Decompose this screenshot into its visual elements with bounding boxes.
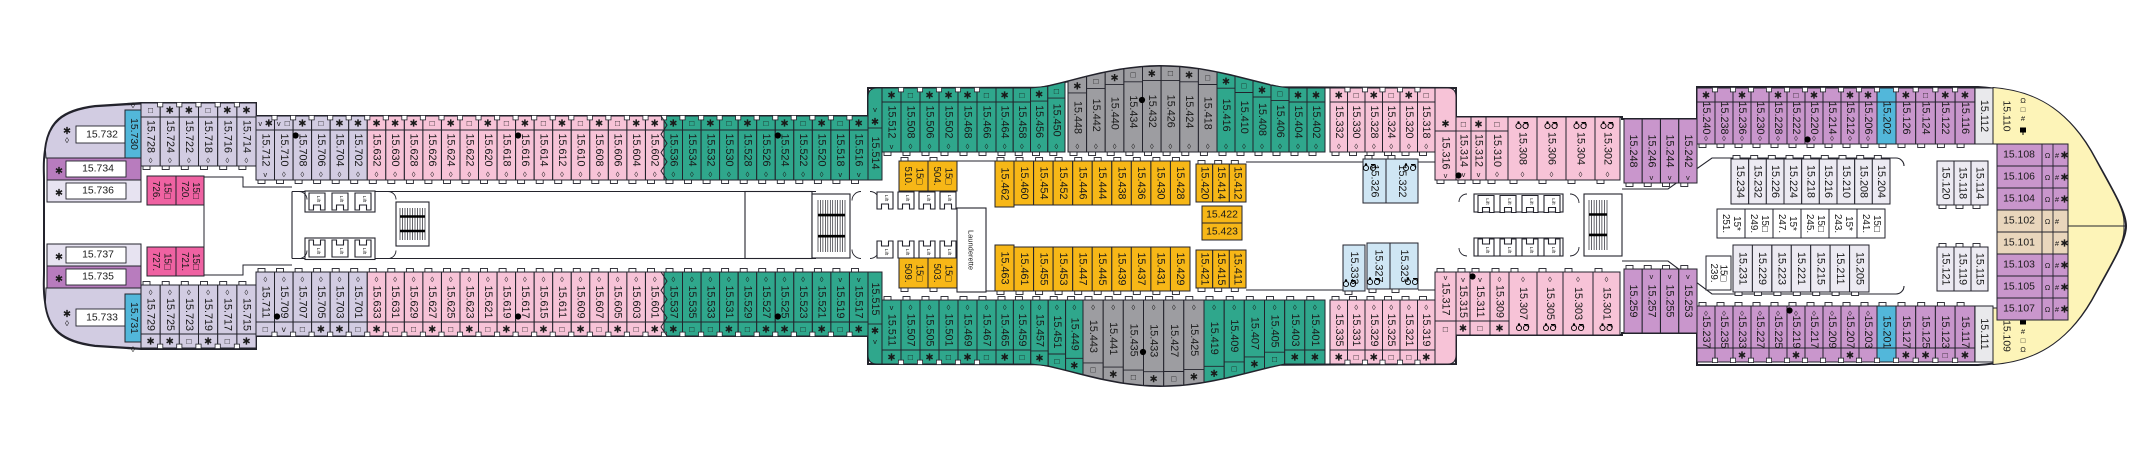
svg-text:15.529: 15.529 [742, 285, 754, 318]
svg-text:□: □ [1131, 372, 1136, 382]
svg-text:□: □ [689, 118, 694, 128]
svg-text:15.124: 15.124 [1920, 101, 1932, 134]
svg-text:15.521: 15.521 [816, 285, 828, 318]
svg-text:◊: ◊ [1794, 134, 1798, 143]
svg-text:Lift: Lift [1506, 247, 1512, 254]
svg-text:Lift: Lift [1528, 198, 1534, 205]
svg-text:15.203: 15.203 [1862, 315, 1874, 348]
svg-text:□: □ [1443, 324, 1448, 334]
svg-text:15.335: 15.335 [1333, 313, 1345, 346]
svg-text:15.210: 15.210 [1840, 165, 1852, 198]
svg-text:◊: ◊ [1372, 303, 1376, 312]
svg-text:15.452: 15.452 [1057, 166, 1069, 199]
svg-text:15.717: 15.717 [221, 298, 233, 331]
svg-text:v: v [1668, 272, 1672, 281]
svg-text:◊: ◊ [206, 288, 210, 297]
svg-text:◊: ◊ [966, 303, 970, 312]
svg-text:◊: ◊ [449, 275, 453, 284]
svg-text:◊: ◊ [1354, 303, 1358, 312]
svg-text:◊: ◊ [1740, 309, 1744, 318]
svg-text:15.223: 15.223 [1776, 252, 1788, 285]
svg-text:◊: ◊ [393, 275, 397, 284]
svg-text:□: □ [206, 105, 211, 115]
svg-text:15.306: 15.306 [1546, 132, 1558, 165]
svg-text:15.416: 15.416 [1220, 99, 1232, 132]
svg-text:◊: ◊ [709, 275, 713, 284]
svg-text:Lift: Lift [315, 248, 321, 255]
svg-text:◊: ◊ [746, 275, 750, 284]
svg-text:□: □ [1477, 323, 1482, 333]
svg-text:v: v [1686, 173, 1690, 182]
svg-text:◊: ◊ [1758, 309, 1762, 318]
svg-text:Launderette: Launderette [967, 230, 976, 270]
svg-text:Lift: Lift [1506, 198, 1512, 205]
svg-text:◊: ◊ [225, 156, 229, 165]
svg-text:◊: ◊ [671, 275, 675, 284]
svg-text:15.206: 15.206 [1862, 101, 1874, 134]
svg-text:15.423: 15.423 [1206, 227, 1238, 238]
svg-text:□: □ [708, 324, 713, 334]
svg-text:15.432: 15.432 [1146, 95, 1158, 128]
svg-text:15.536: 15.536 [667, 133, 679, 166]
svg-text:15.418: 15.418 [1202, 97, 1214, 130]
svg-text:v: v [258, 119, 262, 128]
svg-text:15.235: 15.235 [1718, 315, 1730, 348]
svg-text:15.466: 15.466 [981, 105, 993, 138]
svg-text:15.516: 15.516 [853, 133, 865, 166]
svg-text:□: □ [1354, 90, 1359, 100]
svg-text:15.121: 15.121 [1940, 252, 1952, 285]
svg-text:15.464: 15.464 [999, 105, 1011, 138]
svg-text:v: v [857, 275, 861, 284]
svg-text:15.229: 15.229 [1756, 252, 1768, 285]
svg-text:◊: ◊ [1812, 134, 1816, 143]
svg-text:□: □ [1424, 90, 1429, 100]
svg-text:◊: ◊ [634, 170, 638, 179]
svg-text:15.462: 15.462 [999, 167, 1011, 200]
svg-text:□: □ [1131, 70, 1136, 80]
svg-text:15.445: 15.445 [1096, 252, 1108, 285]
svg-text:15.220: 15.220 [1808, 101, 1820, 134]
svg-text:15.207: 15.207 [1844, 315, 1856, 348]
svg-text:15.701: 15.701 [352, 285, 364, 318]
svg-text:15.126: 15.126 [1900, 101, 1912, 134]
svg-text:◊: ◊ [966, 142, 970, 151]
svg-text:15.515: 15.515 [869, 282, 881, 315]
svg-text:15.325: 15.325 [1385, 313, 1397, 346]
svg-text:Ω: Ω [2045, 173, 2051, 182]
svg-text:◊: ◊ [356, 275, 360, 284]
svg-text:15.433: 15.433 [1148, 324, 1160, 357]
svg-text:◊: ◊ [1354, 142, 1358, 151]
svg-text:15.446: 15.446 [1076, 166, 1088, 199]
svg-text:15.534: 15.534 [686, 133, 698, 166]
svg-text:◊: ◊ [1212, 303, 1216, 312]
svg-text:◊: ◊ [653, 275, 657, 284]
svg-text:15.232: 15.232 [1752, 165, 1764, 198]
svg-text:15.425: 15.425 [1188, 323, 1200, 356]
svg-text:v: v [282, 324, 287, 334]
svg-text:15.523: 15.523 [797, 285, 809, 318]
svg-text:726.: 726. [150, 181, 161, 200]
svg-text:15.511: 15.511 [886, 314, 898, 346]
svg-text:□: □ [355, 324, 360, 334]
svg-text:◊: ◊ [65, 136, 69, 145]
svg-text:◊: ◊ [947, 142, 951, 151]
svg-text:15.614: 15.614 [538, 133, 550, 166]
svg-text:15.104: 15.104 [2003, 194, 2035, 205]
svg-text:□: □ [984, 352, 989, 362]
svg-text:15.525: 15.525 [779, 285, 791, 318]
svg-text:Lift: Lift [1550, 247, 1556, 254]
svg-text:15.719: 15.719 [202, 298, 214, 331]
svg-text:15.224: 15.224 [1787, 165, 1799, 198]
svg-text:◊: ◊ [1131, 142, 1135, 151]
svg-text:15.734: 15.734 [82, 164, 114, 175]
svg-text:Lift: Lift [315, 196, 321, 203]
svg-text:v: v [838, 275, 842, 284]
svg-text:15.219: 15.219 [1790, 315, 1802, 348]
svg-text:□: □ [448, 324, 453, 334]
svg-text:◊: ◊ [1293, 303, 1297, 312]
svg-text:15.718: 15.718 [202, 120, 214, 153]
svg-text:◊: ◊ [1169, 142, 1173, 151]
svg-text:15.234: 15.234 [1734, 165, 1746, 198]
svg-text:◊: ◊ [393, 170, 397, 179]
svg-text:◊: ◊ [634, 275, 638, 284]
svg-text:245.: 245. [1804, 214, 1815, 233]
svg-text:247.: 247. [1776, 214, 1787, 233]
svg-text:◊: ◊ [1192, 303, 1196, 312]
svg-text:504.: 504. [931, 166, 942, 185]
svg-text:15.101: 15.101 [2003, 238, 2035, 249]
svg-text:□: □ [1168, 68, 1173, 78]
svg-text:□: □ [1354, 352, 1359, 362]
svg-text:15*: 15* [1787, 216, 1798, 231]
svg-text:15.105: 15.105 [2003, 282, 2035, 293]
svg-text:15.458: 15.458 [1016, 105, 1028, 138]
svg-text:□: □ [1943, 350, 1948, 360]
svg-text:v: v [1462, 170, 1466, 179]
svg-text:15.715: 15.715 [240, 298, 252, 331]
svg-text:□: □ [1389, 352, 1394, 362]
svg-text:15.248: 15.248 [1627, 134, 1639, 167]
svg-text:□: □ [485, 324, 490, 334]
svg-text:15.737: 15.737 [82, 250, 114, 261]
svg-text:15□: 15□ [943, 168, 954, 185]
svg-text:◊: ◊ [319, 170, 323, 179]
svg-text:◊: ◊ [1020, 142, 1024, 151]
svg-text:15.115: 15.115 [1974, 253, 1986, 285]
svg-text:15□: 15□ [1871, 215, 1882, 232]
svg-text:15.408: 15.408 [1256, 103, 1268, 136]
svg-text:15.230: 15.230 [1754, 101, 1766, 134]
svg-text:15.709: 15.709 [278, 285, 290, 318]
svg-text:15.411: 15.411 [1232, 253, 1244, 285]
svg-text:15.453: 15.453 [1057, 252, 1069, 285]
svg-text:15.426: 15.426 [1164, 95, 1176, 128]
svg-text:15.450: 15.450 [1050, 104, 1062, 137]
svg-text:15.716: 15.716 [221, 120, 233, 153]
svg-text:◊: ◊ [560, 275, 564, 284]
svg-text:15.305: 15.305 [1544, 287, 1556, 320]
svg-text:15.621: 15.621 [482, 285, 494, 318]
svg-text:◊: ◊ [1389, 303, 1393, 312]
svg-text:15.420: 15.420 [1198, 166, 1210, 199]
svg-text:251.: 251. [1720, 214, 1731, 233]
svg-text:◊: ◊ [1830, 134, 1834, 143]
svg-text:15.456: 15.456 [1033, 105, 1045, 138]
svg-text:15.442: 15.442 [1090, 99, 1102, 132]
svg-text:□: □ [1793, 90, 1798, 100]
svg-text:15.328: 15.328 [1368, 105, 1380, 138]
svg-text:15.410: 15.410 [1238, 101, 1250, 134]
svg-text:241.: 241. [1860, 214, 1871, 233]
svg-text:15.612: 15.612 [556, 133, 568, 166]
svg-text:15.236: 15.236 [1736, 101, 1748, 134]
svg-text:□: □ [1241, 80, 1246, 90]
svg-text:15□: 15□ [1815, 215, 1826, 232]
svg-text:15.702: 15.702 [352, 133, 364, 166]
svg-text:◊: ◊ [1722, 134, 1726, 143]
svg-text:◊: ◊ [1424, 142, 1428, 151]
svg-text:15.723: 15.723 [183, 298, 195, 331]
svg-text:v: v [873, 337, 877, 346]
svg-text:◊: ◊ [764, 170, 768, 179]
svg-text:15□: 15□ [162, 182, 173, 199]
svg-text:15.309: 15.309 [1494, 285, 1506, 318]
svg-text:v: v [277, 119, 281, 128]
svg-text:□: □ [504, 118, 509, 128]
svg-text:15.437: 15.437 [1135, 252, 1147, 285]
svg-text:15.728: 15.728 [145, 120, 157, 153]
svg-text:15.512: 15.512 [886, 105, 898, 138]
svg-text:◊: ◊ [560, 170, 564, 179]
svg-text:◊: ◊ [430, 170, 434, 179]
svg-text:15.520: 15.520 [816, 133, 828, 166]
svg-text:15.332: 15.332 [1333, 105, 1345, 138]
svg-text:◊: ◊ [671, 170, 675, 179]
svg-text:15.435: 15.435 [1127, 324, 1139, 357]
svg-text:15.735: 15.735 [82, 272, 114, 283]
svg-text:15.227: 15.227 [1754, 315, 1766, 348]
svg-text:15.443: 15.443 [1087, 320, 1099, 353]
svg-text:15.533: 15.533 [704, 285, 716, 318]
svg-text:15.430: 15.430 [1155, 166, 1167, 199]
svg-text:15.428: 15.428 [1174, 166, 1186, 199]
svg-text:15.502: 15.502 [943, 105, 955, 138]
svg-text:15.201: 15.201 [1881, 315, 1893, 348]
svg-text:◊: ◊ [356, 170, 360, 179]
svg-text:509.: 509. [902, 263, 913, 282]
svg-text:□: □ [263, 324, 268, 334]
svg-text:v: v [1686, 272, 1690, 281]
svg-text:15.626: 15.626 [426, 133, 438, 166]
svg-text:v: v [1461, 275, 1465, 284]
svg-text:15.531: 15.531 [723, 285, 735, 318]
svg-text:15.403: 15.403 [1289, 313, 1301, 346]
svg-text:◊: ◊ [505, 275, 509, 284]
svg-text:15.109: 15.109 [2001, 320, 2012, 352]
svg-text:◊: ◊ [1704, 134, 1708, 143]
svg-text:◊: ◊ [616, 275, 620, 284]
svg-text:◊: ◊ [1094, 142, 1098, 151]
svg-text:15.530: 15.530 [723, 133, 735, 166]
svg-text:◊: ◊ [1521, 275, 1525, 284]
svg-text:◊: ◊ [1794, 309, 1798, 318]
svg-text:15.316: 15.316 [1440, 136, 1452, 169]
svg-text:15.330: 15.330 [1350, 105, 1362, 138]
svg-text:15.202: 15.202 [1881, 101, 1893, 134]
svg-text:15.532: 15.532 [704, 133, 716, 166]
svg-text:15.610: 15.610 [575, 133, 587, 166]
svg-text:v: v [873, 105, 877, 114]
svg-text:15.609: 15.609 [575, 285, 587, 318]
svg-text:15.441: 15.441 [1107, 322, 1119, 355]
svg-text:◊: ◊ [1389, 142, 1393, 151]
svg-text:15.108: 15.108 [2003, 150, 2035, 161]
svg-text:15.106: 15.106 [2003, 172, 2035, 183]
svg-text:15.308: 15.308 [1517, 132, 1529, 165]
svg-text:15.253: 15.253 [1682, 284, 1694, 317]
svg-text:15.329: 15.329 [1368, 313, 1380, 346]
svg-text:15.526: 15.526 [760, 133, 772, 166]
svg-text:15.238: 15.238 [1718, 101, 1730, 134]
svg-text:15□: 15□ [914, 168, 925, 185]
svg-text:Ω: Ω [2045, 305, 2051, 314]
svg-text:◊: ◊ [375, 275, 379, 284]
svg-text:◊: ◊ [579, 275, 583, 284]
svg-text:15.217: 15.217 [1808, 315, 1820, 348]
svg-text:15.405: 15.405 [1269, 315, 1281, 348]
svg-text:v: v [1477, 170, 1481, 179]
svg-text:Lift: Lift [904, 195, 910, 202]
svg-text:15.732: 15.732 [86, 130, 118, 141]
svg-text:15.431: 15.431 [1155, 252, 1167, 285]
svg-text:15.302: 15.302 [1602, 132, 1614, 165]
svg-text:Lift: Lift [1550, 198, 1556, 205]
svg-text:□: □ [1389, 90, 1394, 100]
svg-text:15.522: 15.522 [797, 133, 809, 166]
svg-text:239.: 239. [1708, 263, 1719, 282]
svg-text:15.622: 15.622 [463, 133, 475, 166]
svg-text:◊: ◊ [1113, 142, 1117, 151]
svg-text:◊: ◊ [1038, 303, 1042, 312]
svg-text:◊: ◊ [412, 170, 416, 179]
svg-text:15.601: 15.601 [649, 285, 661, 318]
svg-text:15.222: 15.222 [1790, 101, 1802, 134]
svg-text:15.321: 15.321 [1403, 313, 1415, 346]
svg-text:□: □ [615, 118, 620, 128]
svg-text:◊: ◊ [149, 156, 153, 165]
svg-text:15.402: 15.402 [1310, 105, 1322, 138]
svg-text:□: □ [1020, 352, 1025, 362]
svg-text:□: □ [1171, 373, 1176, 383]
svg-text:15.444: 15.444 [1096, 166, 1108, 199]
svg-text:15.528: 15.528 [742, 133, 754, 166]
svg-text:15□: 15□ [914, 265, 925, 282]
svg-text:◊: ◊ [764, 275, 768, 284]
svg-text:15.722: 15.722 [183, 120, 195, 153]
svg-text:15.714: 15.714 [240, 120, 252, 153]
svg-text:15.448: 15.448 [1071, 101, 1083, 134]
svg-text:◊: ◊ [783, 170, 787, 179]
svg-text:15.507: 15.507 [905, 313, 917, 346]
svg-text:15.246: 15.246 [1645, 134, 1657, 167]
svg-text:◊: ◊ [597, 275, 601, 284]
svg-text:◊: ◊ [187, 288, 191, 297]
svg-text:15□: 15□ [190, 182, 201, 199]
svg-text:◊: ◊ [1091, 303, 1095, 312]
svg-text:15*: 15* [1731, 216, 1742, 231]
svg-text:◊: ◊ [820, 275, 824, 284]
svg-text:◊: ◊ [1037, 142, 1041, 151]
svg-text:◊: ◊ [1605, 275, 1609, 284]
svg-text:15.603: 15.603 [630, 285, 642, 318]
svg-text:15.102: 15.102 [2003, 216, 2035, 227]
svg-text:◊: ◊ [1003, 303, 1007, 312]
svg-text:15.457: 15.457 [1034, 314, 1046, 347]
svg-text:◊: ◊ [1550, 170, 1554, 179]
svg-text:15.103: 15.103 [2003, 260, 2035, 271]
svg-text:15.304: 15.304 [1575, 132, 1587, 165]
svg-text:15.255: 15.255 [1664, 284, 1676, 317]
svg-text:◊: ◊ [1776, 309, 1780, 318]
svg-text:◊: ◊ [65, 319, 69, 328]
svg-text:15.711: 15.711 [259, 286, 271, 318]
svg-text:15.110: 15.110 [2001, 100, 2012, 131]
svg-text:◊: ◊ [801, 170, 805, 179]
svg-text:Ω: Ω [2020, 96, 2026, 105]
svg-text:15.424: 15.424 [1183, 95, 1195, 128]
svg-text:15.465: 15.465 [999, 313, 1011, 346]
svg-text:15□: 15□ [1759, 215, 1770, 232]
svg-text:◊: ◊ [131, 345, 135, 354]
svg-text:15.116: 15.116 [1959, 102, 1971, 134]
svg-text:◊: ◊ [1072, 303, 1076, 312]
svg-text:□: □ [186, 336, 191, 346]
svg-text:15.630: 15.630 [389, 133, 401, 166]
svg-text:15.632: 15.632 [371, 133, 383, 166]
svg-text:◊: ◊ [168, 288, 172, 297]
svg-text:□: □ [984, 90, 989, 100]
svg-text:□: □ [597, 324, 602, 334]
svg-text:15.307: 15.307 [1517, 287, 1529, 320]
svg-text:□: □ [285, 118, 290, 128]
svg-text:15.204: 15.204 [1875, 165, 1887, 198]
svg-text:15.216: 15.216 [1822, 165, 1834, 198]
svg-text:15.703: 15.703 [334, 285, 346, 318]
svg-text:◊: ◊ [1111, 303, 1115, 312]
svg-text:◊: ◊ [1132, 303, 1136, 312]
svg-text:◊: ◊ [1812, 309, 1816, 318]
svg-text:15.122: 15.122 [1939, 101, 1951, 134]
svg-text:◊: ◊ [653, 170, 657, 179]
svg-text:◊: ◊ [1866, 309, 1870, 318]
svg-text:15.257: 15.257 [1645, 284, 1657, 317]
svg-text:v: v [1478, 275, 1482, 284]
svg-text:□: □ [1054, 86, 1059, 96]
svg-text:◊: ◊ [301, 275, 305, 284]
svg-text:v: v [1650, 173, 1654, 182]
svg-text:15.421: 15.421 [1198, 252, 1210, 285]
svg-text:□: □ [1494, 119, 1499, 129]
svg-text:15.244: 15.244 [1664, 134, 1676, 167]
svg-text:15.311: 15.311 [1474, 285, 1486, 317]
svg-text:◊: ◊ [1740, 134, 1744, 143]
svg-text:◊: ◊ [1152, 303, 1156, 312]
svg-text:15.422: 15.422 [1206, 210, 1238, 221]
